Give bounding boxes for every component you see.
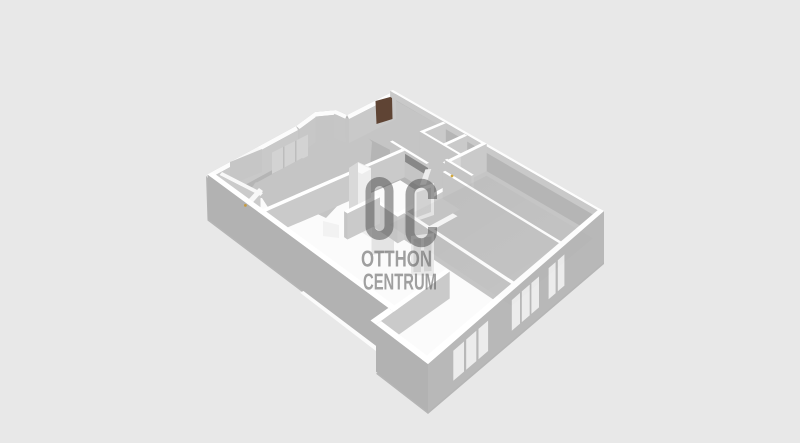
svg-text:CENTRUM: CENTRUM	[363, 268, 437, 294]
